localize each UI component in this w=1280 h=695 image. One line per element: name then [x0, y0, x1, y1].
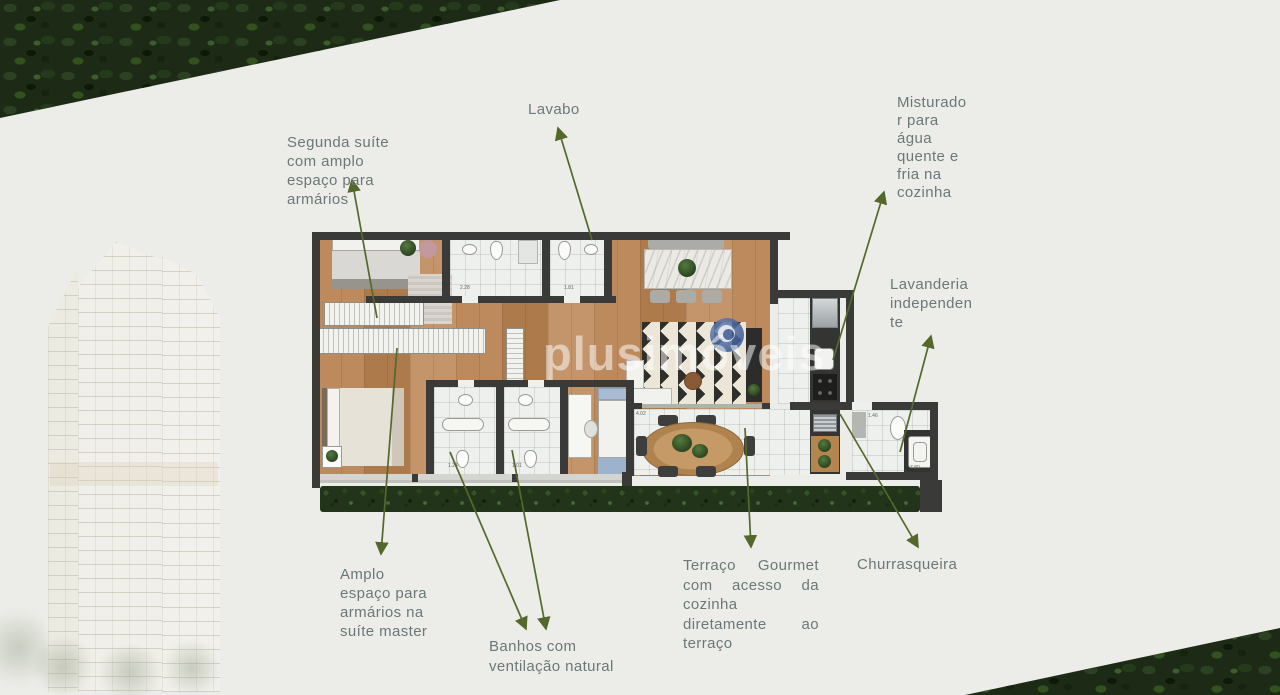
plant: [678, 259, 696, 277]
suite2-pouf: [419, 240, 437, 258]
label-segunda-suite: Segunda suíte com amplo espaço para armá…: [287, 133, 389, 209]
wall: [442, 232, 450, 302]
suite2-wardrobe: [324, 302, 424, 326]
bathtub: [508, 418, 550, 431]
wall: [512, 474, 518, 482]
label-line: Misturado: [897, 94, 966, 112]
label-line: Segunda suíte: [287, 133, 389, 152]
washing-machine-door: [913, 442, 927, 462]
dining-chair: [702, 290, 722, 303]
hall-closet: [506, 328, 524, 384]
foliage-bottom-right: [965, 628, 1280, 695]
building-tree: [162, 640, 222, 695]
sink: [518, 394, 533, 406]
dining-chair: [676, 290, 696, 303]
wall: [604, 232, 612, 302]
dimension-label: 1.24: [448, 464, 458, 469]
building-tree: [30, 637, 96, 695]
wall: [312, 232, 790, 240]
label-line: Churrasqueira: [857, 555, 957, 574]
label-line: com acesso da: [683, 576, 819, 596]
label-churrasqueira: Churrasqueira: [857, 555, 957, 574]
plant: [692, 444, 708, 458]
foliage-top-left: [0, 0, 560, 118]
label-terraco: Terraço Gourmet com acesso da cozinha di…: [683, 556, 819, 654]
building-tree: [92, 647, 168, 695]
bathtub: [442, 418, 484, 431]
terrace-chair: [636, 436, 647, 456]
sink: [584, 244, 598, 255]
watermark-text: plusimóveis: [543, 326, 826, 381]
wall: [626, 380, 634, 476]
label-line: cozinha: [683, 595, 819, 615]
label-lavabo: Lavabo: [528, 100, 580, 119]
plant: [818, 455, 831, 468]
label-line: r para: [897, 112, 966, 130]
label-banhos: Banhos com ventilação natural: [489, 637, 614, 677]
door-opening: [462, 296, 478, 303]
dimension-label: 1.46: [868, 414, 878, 419]
page: 2.28 1.81 1.24 1.01 1.46 7.80 4.02 plusi…: [0, 0, 1280, 695]
door-opening: [528, 380, 544, 387]
terrace-chair: [696, 466, 716, 477]
label-lavanderia: Lavanderia independen te: [890, 275, 972, 332]
label-line: ventilação natural: [489, 657, 614, 677]
terrace-chair: [744, 436, 755, 456]
door-opening: [852, 402, 872, 410]
label-line: terraço: [683, 634, 819, 654]
dining-chair: [650, 290, 670, 303]
label-amplo: Amplo espaço para armários na suíte mast…: [340, 565, 427, 641]
wall: [412, 474, 418, 482]
door-opening: [564, 296, 580, 303]
label-line: cozinha: [897, 184, 966, 202]
grill: [813, 414, 837, 432]
label-line: espaço para: [287, 171, 389, 190]
desk-chair: [584, 420, 598, 438]
laundry-mat: [852, 412, 866, 438]
label-line: Banhos com: [489, 637, 614, 657]
hedge: [320, 486, 920, 512]
plant: [326, 450, 338, 462]
dimension-label: 1.01: [512, 464, 522, 469]
master-wardrobe: [318, 328, 486, 354]
plant: [818, 439, 831, 452]
label-line: Lavanderia: [890, 275, 972, 294]
wall: [846, 290, 854, 404]
fridge: [812, 298, 838, 328]
suite2-bed-throw: [332, 279, 420, 289]
sliding-glass-door: [634, 404, 770, 408]
wall: [762, 403, 770, 409]
plant: [672, 434, 692, 452]
wall: [634, 403, 642, 409]
window-sill: [318, 480, 628, 483]
wall: [542, 232, 550, 302]
wall: [846, 472, 938, 480]
label-line: Terraço Gourmet: [683, 556, 819, 576]
building-warm-band: [50, 462, 218, 486]
label-line: fria na: [897, 166, 966, 184]
sink: [458, 394, 473, 406]
dimension-label: 4.02: [636, 412, 646, 417]
sink: [462, 244, 477, 255]
label-line: Amplo: [340, 565, 427, 584]
wall: [778, 290, 854, 298]
label-line: te: [890, 313, 972, 332]
wall: [560, 380, 568, 476]
wall: [920, 480, 942, 512]
label-line: armários na: [340, 603, 427, 622]
label-line: suíte master: [340, 622, 427, 641]
kid-bed: [598, 400, 628, 458]
label-line: independen: [890, 294, 972, 313]
terrace-chair: [658, 466, 678, 477]
arrow-lavabo: [558, 128, 592, 240]
label-line: armários: [287, 190, 389, 209]
building-render: [22, 212, 224, 695]
wall: [312, 232, 320, 482]
wall: [770, 232, 778, 304]
wall: [312, 472, 320, 488]
label-misturador: Misturado r para água quente e fria na c…: [897, 94, 966, 202]
label-line: quente e: [897, 148, 966, 166]
plant: [400, 240, 416, 256]
label-line: água: [897, 130, 966, 148]
wall: [426, 380, 434, 476]
wall: [496, 380, 504, 476]
master-bed-throw: [392, 388, 404, 466]
wall: [622, 472, 632, 486]
dimension-label: 1.81: [564, 286, 574, 291]
label-line: com amplo: [287, 152, 389, 171]
label-line: espaço para: [340, 584, 427, 603]
dimension-label: 7.80: [910, 466, 920, 471]
label-line: Lavabo: [528, 100, 580, 119]
door-opening: [458, 380, 474, 387]
dimension-label: 2.28: [460, 286, 470, 291]
kid-bed-pillow: [598, 388, 628, 400]
label-line: diretamente ao: [683, 615, 819, 635]
shower: [518, 240, 538, 264]
plant: [748, 384, 760, 396]
wall: [930, 402, 938, 480]
